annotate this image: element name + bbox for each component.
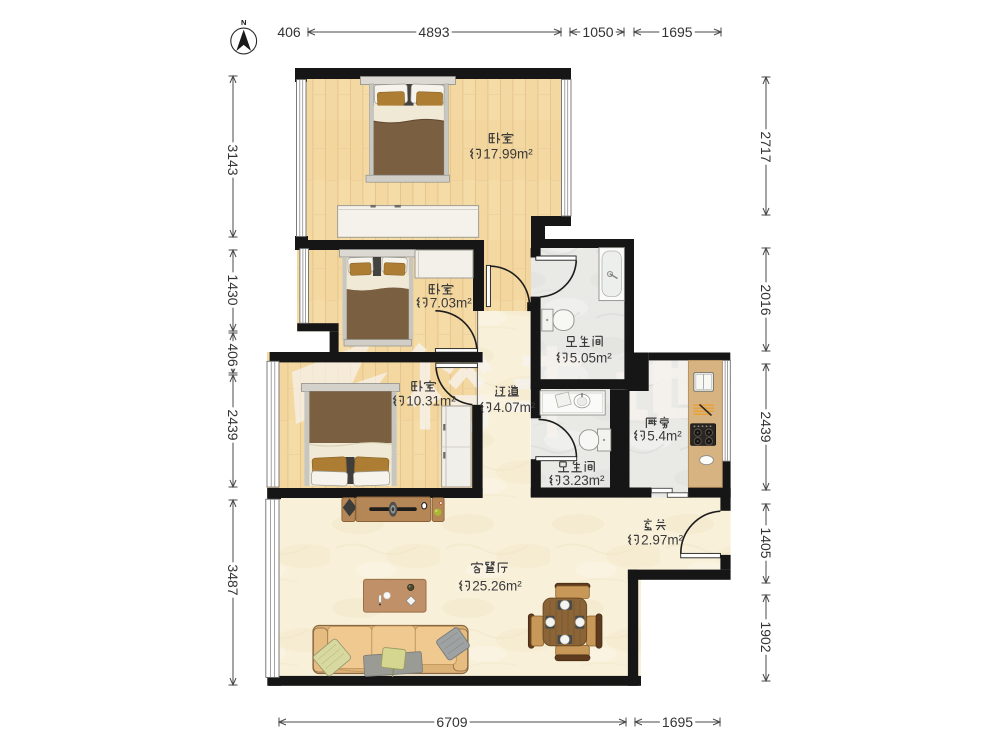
svg-text:2439: 2439 <box>758 411 774 442</box>
svg-text:1695: 1695 <box>662 714 693 730</box>
svg-text:7.03m²: 7.03m² <box>430 295 473 310</box>
svg-text:2016: 2016 <box>758 284 774 315</box>
svg-text:N: N <box>241 18 246 27</box>
svg-text:2717: 2717 <box>758 131 774 162</box>
svg-text:25.26m²: 25.26m² <box>472 579 522 594</box>
svg-text:3143: 3143 <box>225 144 241 175</box>
svg-text:1902: 1902 <box>758 621 774 652</box>
svg-text:1695: 1695 <box>661 24 692 40</box>
svg-text:5.05m²: 5.05m² <box>570 350 613 365</box>
svg-text:406: 406 <box>225 343 241 367</box>
svg-text:4.07m²: 4.07m² <box>493 400 536 415</box>
svg-text:2439: 2439 <box>225 409 241 440</box>
svg-text:10.31m²: 10.31m² <box>406 394 456 409</box>
svg-text:6709: 6709 <box>436 714 467 730</box>
svg-text:1405: 1405 <box>758 527 774 558</box>
svg-text:3487: 3487 <box>225 564 241 595</box>
svg-text:5.4m²: 5.4m² <box>647 428 682 443</box>
svg-text:2.97m²: 2.97m² <box>641 533 684 548</box>
svg-text:406: 406 <box>277 24 301 40</box>
svg-text:17.99m²: 17.99m² <box>483 147 533 162</box>
svg-text:4893: 4893 <box>418 24 449 40</box>
svg-text:1050: 1050 <box>582 24 613 40</box>
svg-text:3.23m²: 3.23m² <box>563 473 606 488</box>
svg-text:1430: 1430 <box>225 274 241 305</box>
